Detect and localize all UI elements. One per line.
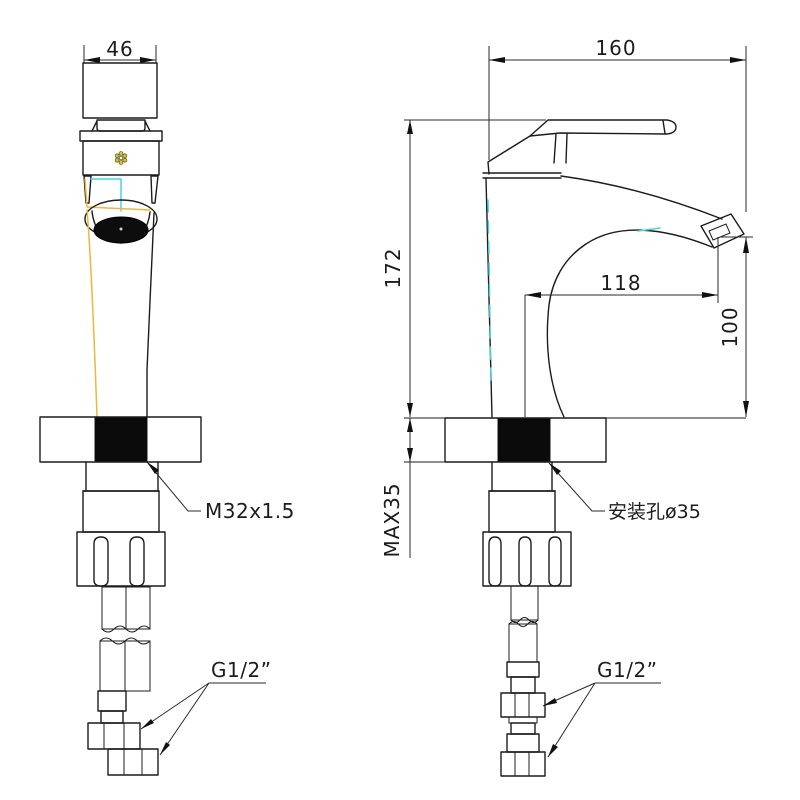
dim-118-label: 118 bbox=[600, 271, 641, 295]
side-dim-height: 172 bbox=[381, 120, 546, 417]
dim-max35-label: MAX35 bbox=[380, 482, 404, 557]
front-spout-body bbox=[84, 176, 158, 417]
faucet-technical-drawing: 46 bbox=[0, 0, 800, 800]
front-mounting-nut bbox=[77, 462, 165, 586]
leader-arrow bbox=[549, 463, 561, 475]
side-supply-hose bbox=[501, 586, 545, 776]
hose-thread-label: G1/2” bbox=[211, 658, 272, 682]
dim-arrow bbox=[407, 418, 413, 432]
side-hose-callout: G1/2” bbox=[543, 658, 661, 757]
dim-arrow bbox=[407, 120, 413, 134]
side-mounting-nut bbox=[483, 462, 571, 586]
dim-160-label: 160 bbox=[595, 36, 636, 60]
cad-accent-line bbox=[87, 210, 97, 417]
side-deck-section bbox=[404, 418, 746, 462]
side-dim-outlet-height: 100 bbox=[718, 237, 753, 417]
leader-arrow bbox=[147, 462, 159, 474]
side-hole-callout: 安装孔ø35 bbox=[549, 463, 701, 523]
dim-arrow bbox=[489, 57, 505, 63]
front-thread-callout: M32x1.5 bbox=[147, 462, 295, 523]
front-hose-callout: G1/2” bbox=[141, 658, 272, 755]
hose-thread-label: G1/2” bbox=[597, 658, 658, 682]
dim-arrow bbox=[730, 57, 746, 63]
dim-arrow bbox=[407, 448, 413, 462]
side-dim-reach: 160 bbox=[489, 36, 746, 212]
dim-arrow bbox=[743, 237, 749, 253]
hose-fitting-nut bbox=[88, 723, 140, 749]
dim-172-label: 172 bbox=[381, 247, 405, 288]
drawing-sheet: 46 bbox=[0, 0, 800, 800]
dim-arrow bbox=[84, 57, 100, 63]
thread-label: M32x1.5 bbox=[205, 499, 295, 523]
dim-arrow bbox=[407, 403, 413, 417]
mounting-hole-section bbox=[498, 418, 550, 462]
front-view: 46 bbox=[40, 37, 295, 775]
dim-arrow bbox=[702, 292, 718, 298]
leader-arrow bbox=[548, 744, 558, 757]
flower-logo-icon bbox=[115, 152, 127, 165]
side-dim-deck-thickness: MAX35 bbox=[380, 418, 413, 558]
hose-fitting-nut bbox=[108, 749, 158, 775]
side-view: 160 172 118 bbox=[380, 36, 753, 776]
dim-100-label: 100 bbox=[718, 306, 742, 347]
leader-arrow bbox=[141, 719, 154, 729]
dim-arrow bbox=[743, 401, 749, 417]
front-dim-width: 46 bbox=[84, 37, 156, 63]
dim-arrow bbox=[140, 57, 156, 63]
hose-fitting-nut bbox=[501, 693, 545, 717]
leader-arrow bbox=[160, 742, 170, 755]
hose-fitting-nut bbox=[501, 752, 545, 776]
front-supply-hoses bbox=[88, 587, 158, 775]
dim-arrow bbox=[525, 292, 541, 298]
mounting-hole-section bbox=[95, 417, 147, 462]
front-deck-section bbox=[40, 417, 201, 462]
hole-label: 安装孔ø35 bbox=[608, 501, 701, 523]
dim-46-label: 46 bbox=[106, 37, 133, 61]
side-handle bbox=[488, 120, 676, 174]
